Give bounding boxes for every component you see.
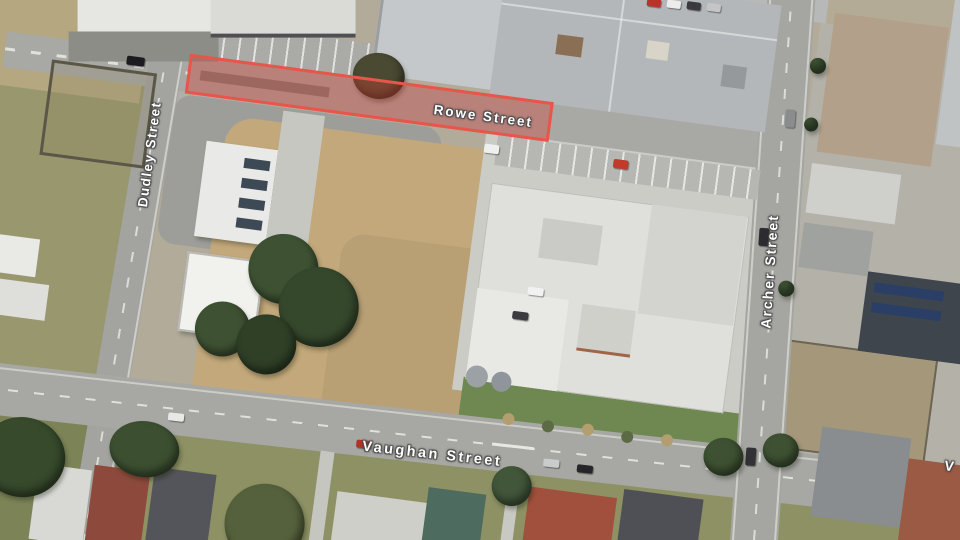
roof-panels <box>238 198 265 211</box>
complex-east-roof <box>638 204 748 326</box>
car <box>484 144 500 155</box>
map-world-layer: Rowe Street Dudley Street Archer Street … <box>0 0 960 540</box>
building-roof <box>211 0 356 38</box>
car <box>613 159 629 170</box>
car <box>745 447 756 466</box>
house-roof <box>810 427 911 528</box>
street-label-partial-east: V <box>944 457 957 474</box>
house-roof-teal <box>420 487 487 540</box>
solar-panels <box>874 282 945 301</box>
car <box>543 458 560 468</box>
building-solar-roof <box>858 271 960 366</box>
car <box>686 1 701 11</box>
car <box>576 464 593 474</box>
building-roof-tan <box>817 13 950 167</box>
roof-panels <box>241 178 268 191</box>
roof-panels <box>236 217 263 230</box>
turn-arrow-marking <box>492 443 534 451</box>
rooftop-unit <box>645 40 669 61</box>
car <box>168 412 185 422</box>
complex-roof-detail <box>576 304 636 358</box>
house-roof-dark <box>143 467 216 540</box>
complex-roof-detail <box>538 218 603 266</box>
rooftop-unit <box>555 34 583 57</box>
roof-panels <box>243 158 270 171</box>
solar-panels <box>871 302 942 321</box>
rooftop-unit <box>720 64 747 89</box>
car <box>784 109 795 128</box>
building-roof <box>0 232 40 278</box>
satellite-map-canvas[interactable]: Rowe Street Dudley Street Archer Street … <box>0 0 960 540</box>
shed-roof <box>798 222 873 276</box>
fenced-yard <box>39 60 157 169</box>
car <box>706 3 721 13</box>
median-shadow <box>200 70 330 97</box>
warehouse-roof <box>194 141 278 246</box>
